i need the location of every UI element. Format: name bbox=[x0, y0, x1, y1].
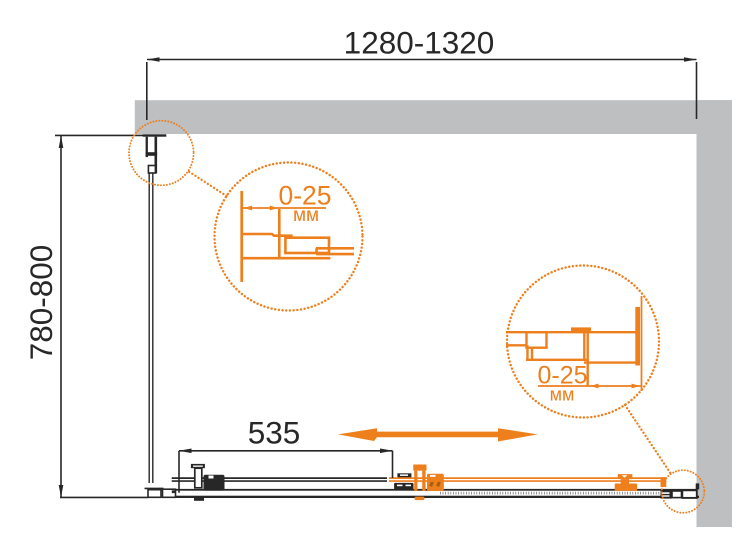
svg-text:мм: мм bbox=[550, 385, 575, 405]
svg-text:535: 535 bbox=[248, 415, 301, 451]
svg-text:780-800: 780-800 bbox=[23, 245, 59, 361]
svg-text:мм: мм bbox=[293, 205, 319, 226]
svg-text:1280-1320: 1280-1320 bbox=[344, 25, 495, 61]
